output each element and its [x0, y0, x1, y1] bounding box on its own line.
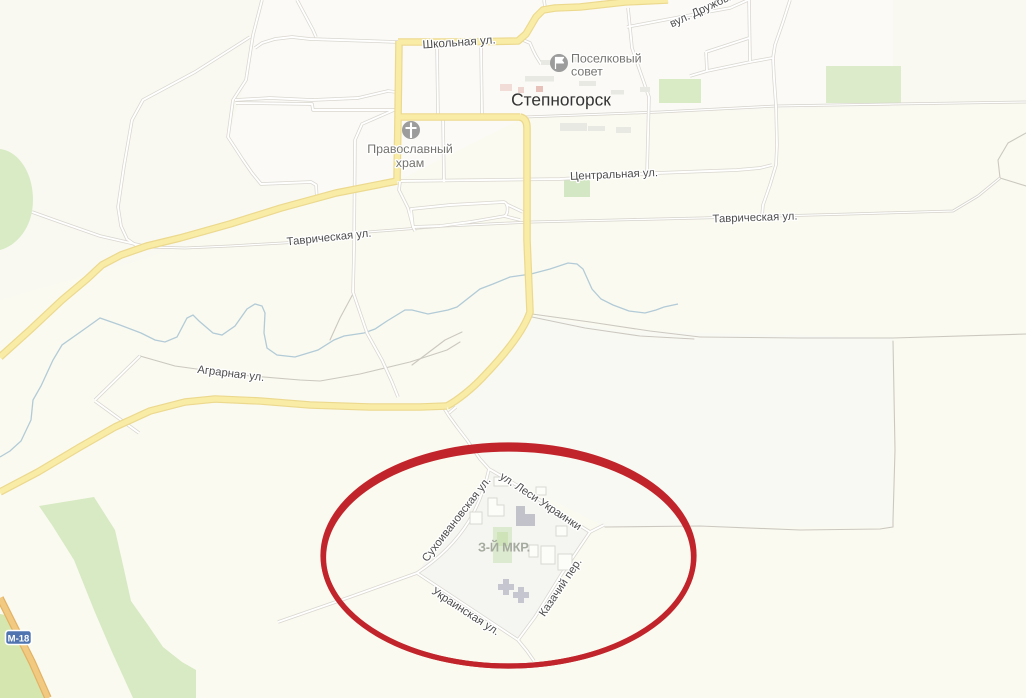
svg-text:М-18: М-18	[8, 634, 30, 645]
svg-text:храм: храм	[396, 156, 425, 170]
svg-text:Поселковый: Поселковый	[571, 52, 642, 66]
svg-text:Православный: Православный	[367, 142, 453, 156]
svg-text:Степногорск: Степногорск	[511, 90, 611, 110]
svg-text:совет: совет	[571, 65, 603, 79]
svg-text:З-Й МКР.: З-Й МКР.	[478, 540, 530, 555]
